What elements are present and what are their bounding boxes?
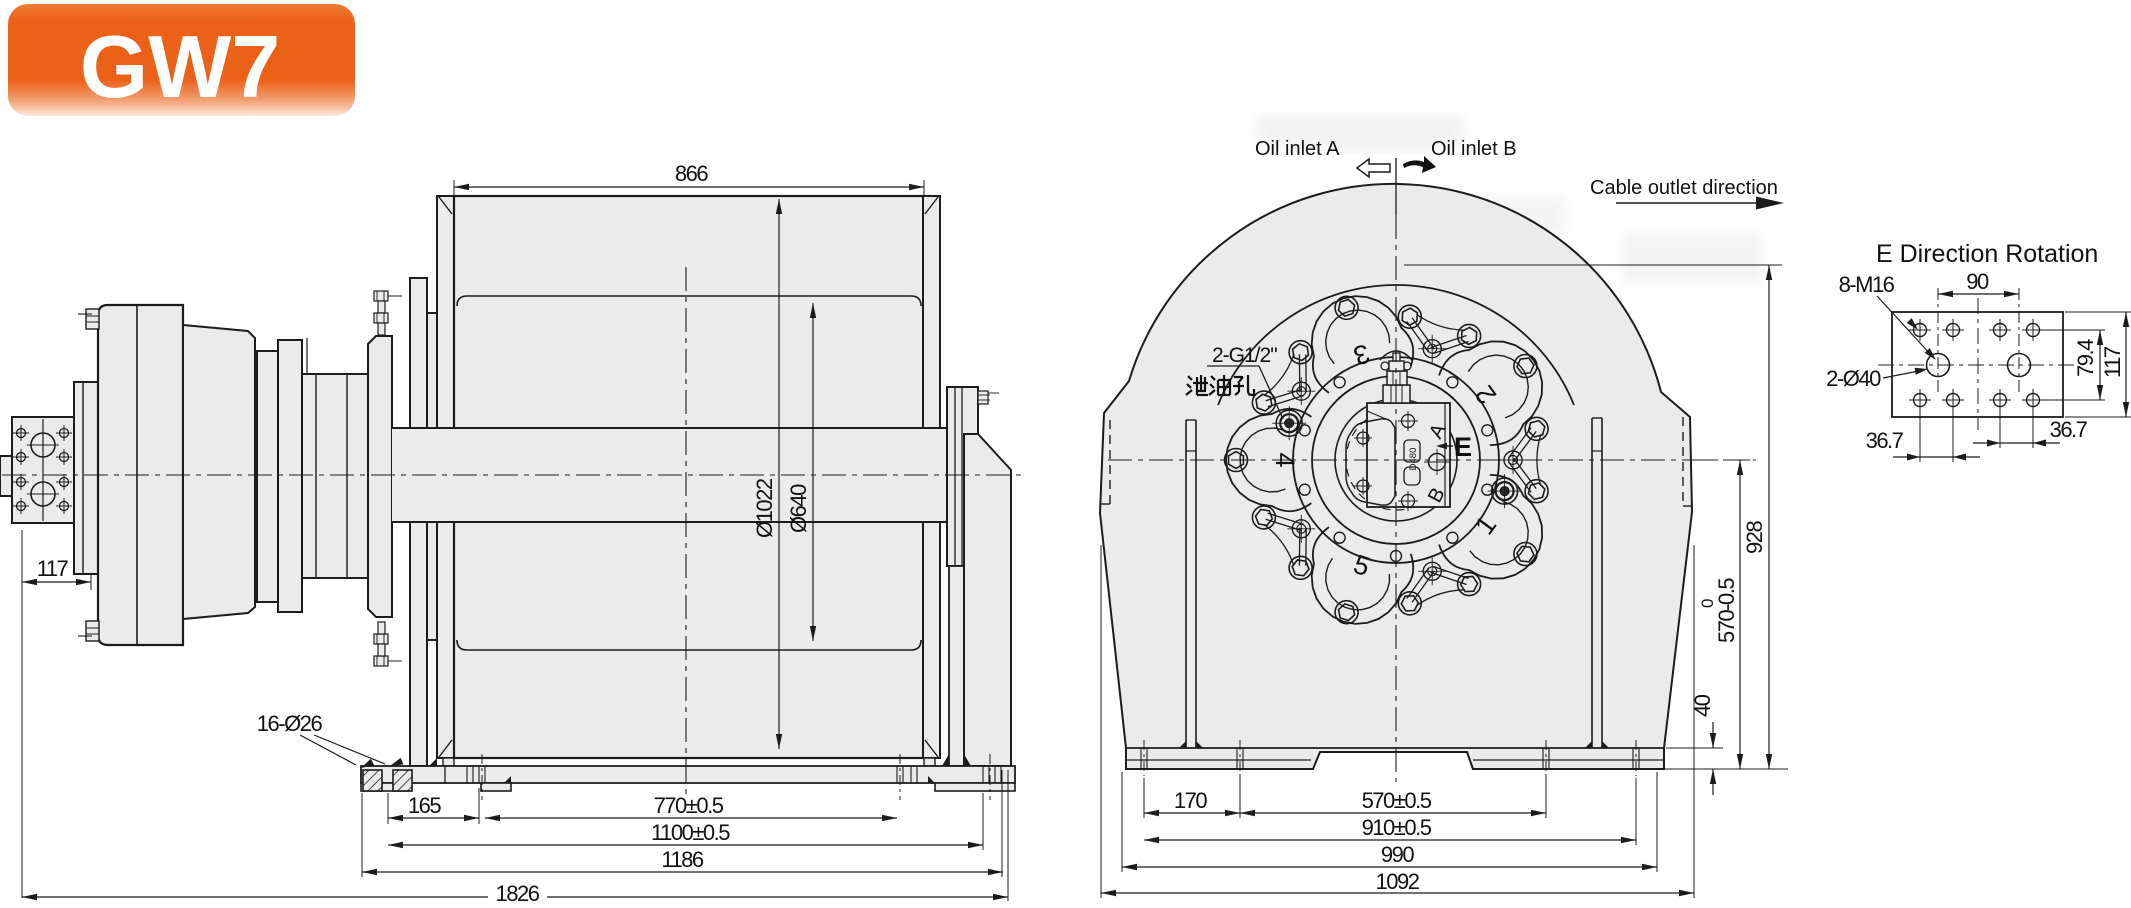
svg-text:990: 990 (1381, 842, 1414, 867)
svg-text:1186: 1186 (661, 847, 704, 872)
svg-text:170: 170 (1174, 788, 1207, 813)
svg-text:Oil inlet A: Oil inlet A (1255, 138, 1340, 160)
svg-text:36.7: 36.7 (1866, 428, 1904, 453)
svg-text:Cable outlet direction: Cable outlet direction (1590, 177, 1778, 199)
svg-text:8-M16: 8-M16 (1839, 272, 1895, 297)
svg-text:GW7: GW7 (80, 17, 280, 116)
svg-text:570-0.5: 570-0.5 (1714, 578, 1739, 643)
svg-text:E: E (1454, 432, 1472, 462)
svg-text:0: 0 (1698, 599, 1717, 608)
svg-text:Oil inlet B: Oil inlet B (1431, 138, 1517, 160)
svg-text:910±0.5: 910±0.5 (1362, 815, 1432, 840)
svg-text:79.4: 79.4 (2073, 339, 2098, 377)
svg-text:165: 165 (408, 793, 441, 818)
svg-text:117: 117 (37, 556, 69, 581)
svg-text:1826: 1826 (496, 881, 540, 906)
svg-text:866: 866 (675, 161, 708, 186)
svg-text:Ø640: Ø640 (786, 484, 811, 533)
svg-text:770±0.5: 770±0.5 (654, 793, 724, 818)
svg-text:36.7: 36.7 (2050, 417, 2088, 442)
svg-text:Ø1022: Ø1022 (752, 478, 777, 538)
svg-text:E Direction Rotation: E Direction Rotation (1876, 240, 2098, 268)
svg-text:16-Ø26: 16-Ø26 (257, 711, 323, 736)
svg-text:1092: 1092 (1376, 869, 1420, 894)
svg-text:1100±0.5: 1100±0.5 (651, 820, 730, 845)
svg-text:2-Ø40: 2-Ø40 (1826, 366, 1881, 391)
svg-text:117: 117 (2100, 346, 2125, 378)
svg-text:2-G1/2": 2-G1/2" (1212, 344, 1277, 367)
svg-text:928: 928 (1742, 521, 1767, 554)
svg-text:90: 90 (1966, 269, 1989, 294)
svg-text:570±0.5: 570±0.5 (1362, 788, 1432, 813)
